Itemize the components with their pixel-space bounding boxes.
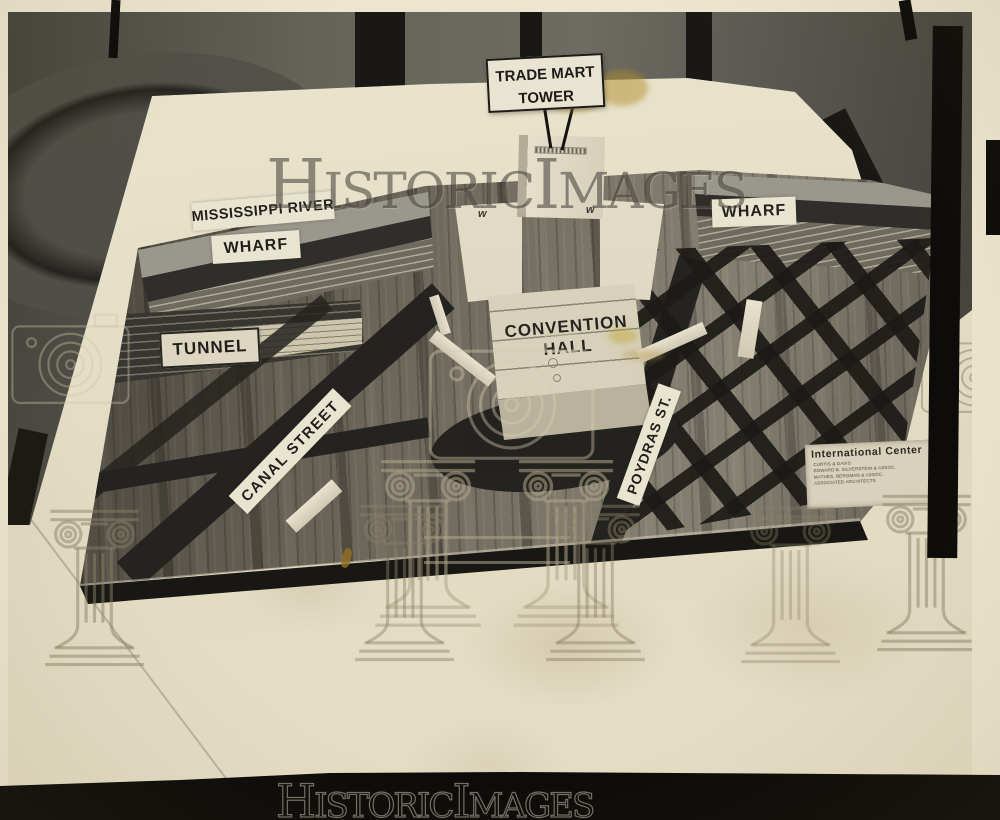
trade-mart-tower-sign: TRADE MART TOWER	[486, 53, 606, 113]
photo-border-right	[972, 0, 1000, 820]
film-edge-bar-right	[927, 26, 963, 558]
column-watermark-icon	[738, 502, 843, 670]
label-tunnel: TUNNEL	[159, 327, 261, 368]
column-watermark-icon	[352, 500, 457, 668]
watermark-part: H	[276, 774, 314, 820]
watermark-part: I	[452, 774, 468, 820]
chair-leg	[355, 12, 405, 92]
chair-leg	[686, 12, 712, 82]
photo-border-left	[0, 0, 8, 820]
film-edge-tick	[986, 140, 1000, 235]
column-watermark-icon	[42, 505, 147, 673]
watermark-part: MAGES	[469, 786, 594, 820]
watermark-part: H	[266, 146, 323, 225]
photo-border-top	[0, 0, 1000, 12]
camera-watermark-icon	[424, 330, 599, 465]
plaque-credit-lines: CURTIS & DAVIS EDWARD B. SILVERSTEIN & A…	[805, 456, 935, 486]
watermark-part: MAGES	[558, 162, 746, 220]
historicimages-watermark-bottom: HISTORICIMAGES	[276, 774, 593, 820]
watermark-part: I	[533, 146, 558, 225]
column-watermark-icon	[543, 500, 648, 668]
historicimages-watermark-center: HISTORICIMAGES	[266, 146, 746, 225]
camera-watermark-icon	[8, 292, 133, 427]
watermark-part: ISTORIC	[323, 162, 533, 220]
watermark-part: ISTORIC	[314, 786, 452, 820]
press-photo: w w TRADE MART TOWER MISSISSIPPI RIVER W…	[0, 0, 1000, 820]
column-watermark-icon	[874, 490, 979, 658]
